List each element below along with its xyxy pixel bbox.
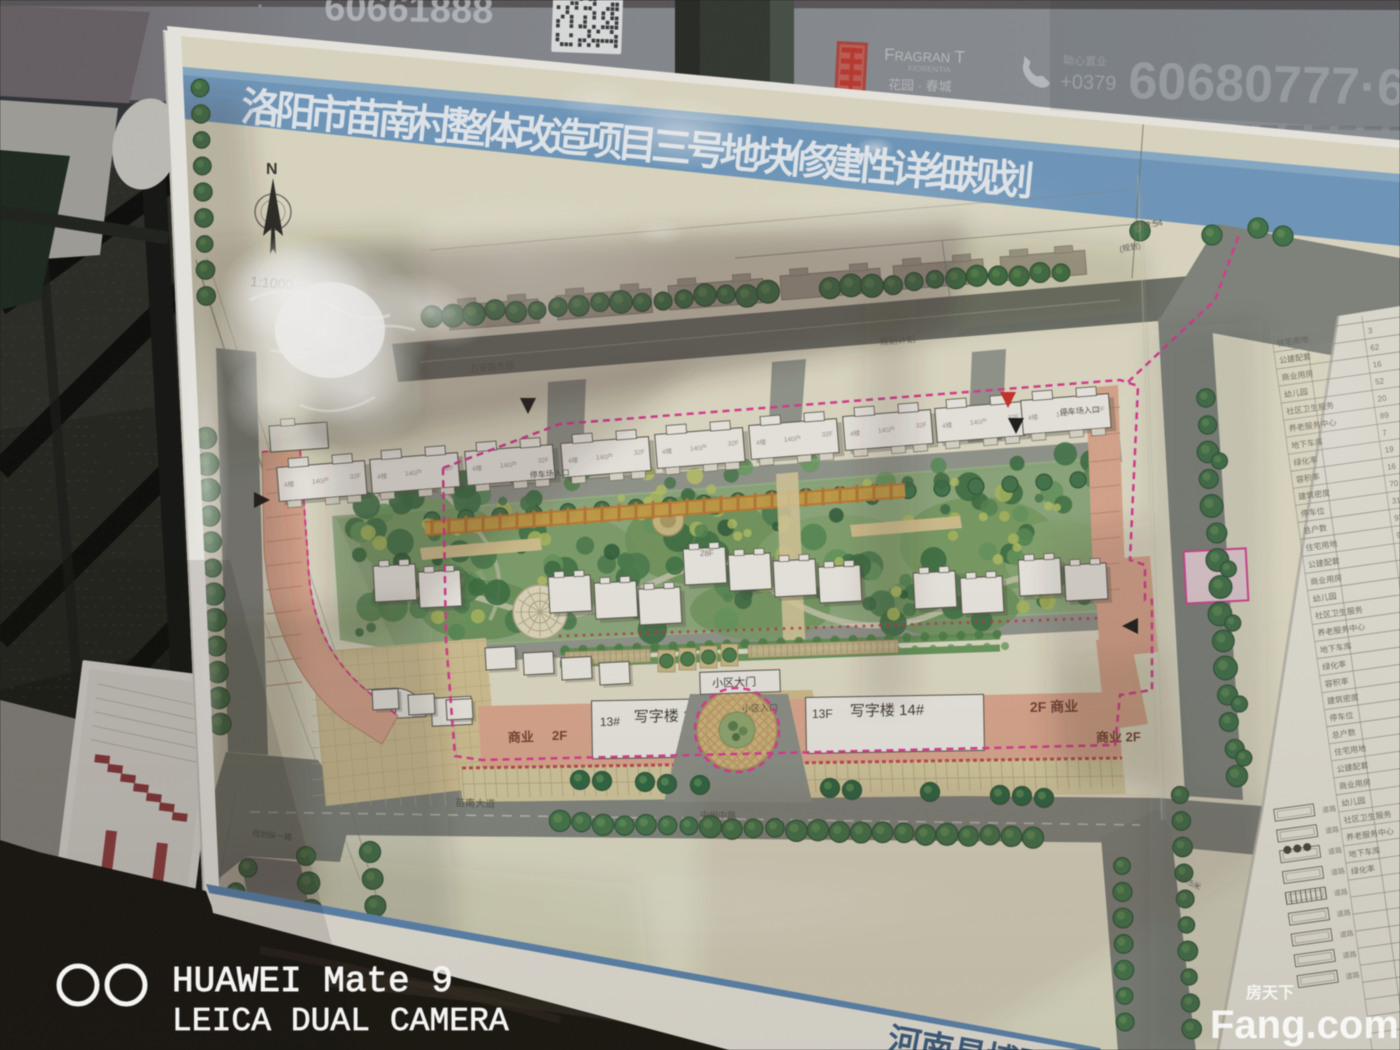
svg-text:Fang.com: Fang.com — [1210, 1003, 1399, 1047]
svg-text:房天下: 房天下 — [1246, 983, 1294, 1002]
svg-text:LEICA DUAL CAMERA: LEICA DUAL CAMERA — [172, 1003, 509, 1040]
svg-text:HUAWEI Mate 9: HUAWEI Mate 9 — [172, 961, 453, 1002]
